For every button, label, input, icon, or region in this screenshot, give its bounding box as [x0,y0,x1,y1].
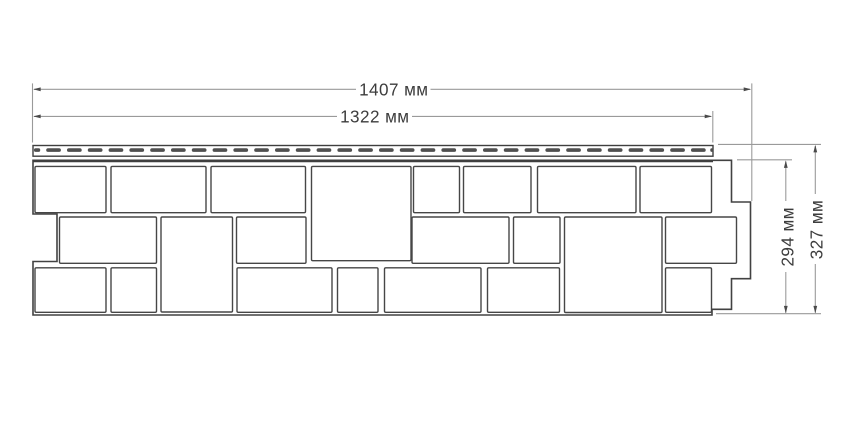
svg-text:1407 мм: 1407 мм [359,81,428,100]
svg-text:294 мм: 294 мм [779,207,798,266]
svg-text:327 мм: 327 мм [807,200,826,259]
svg-text:1322 мм: 1322 мм [340,108,409,127]
